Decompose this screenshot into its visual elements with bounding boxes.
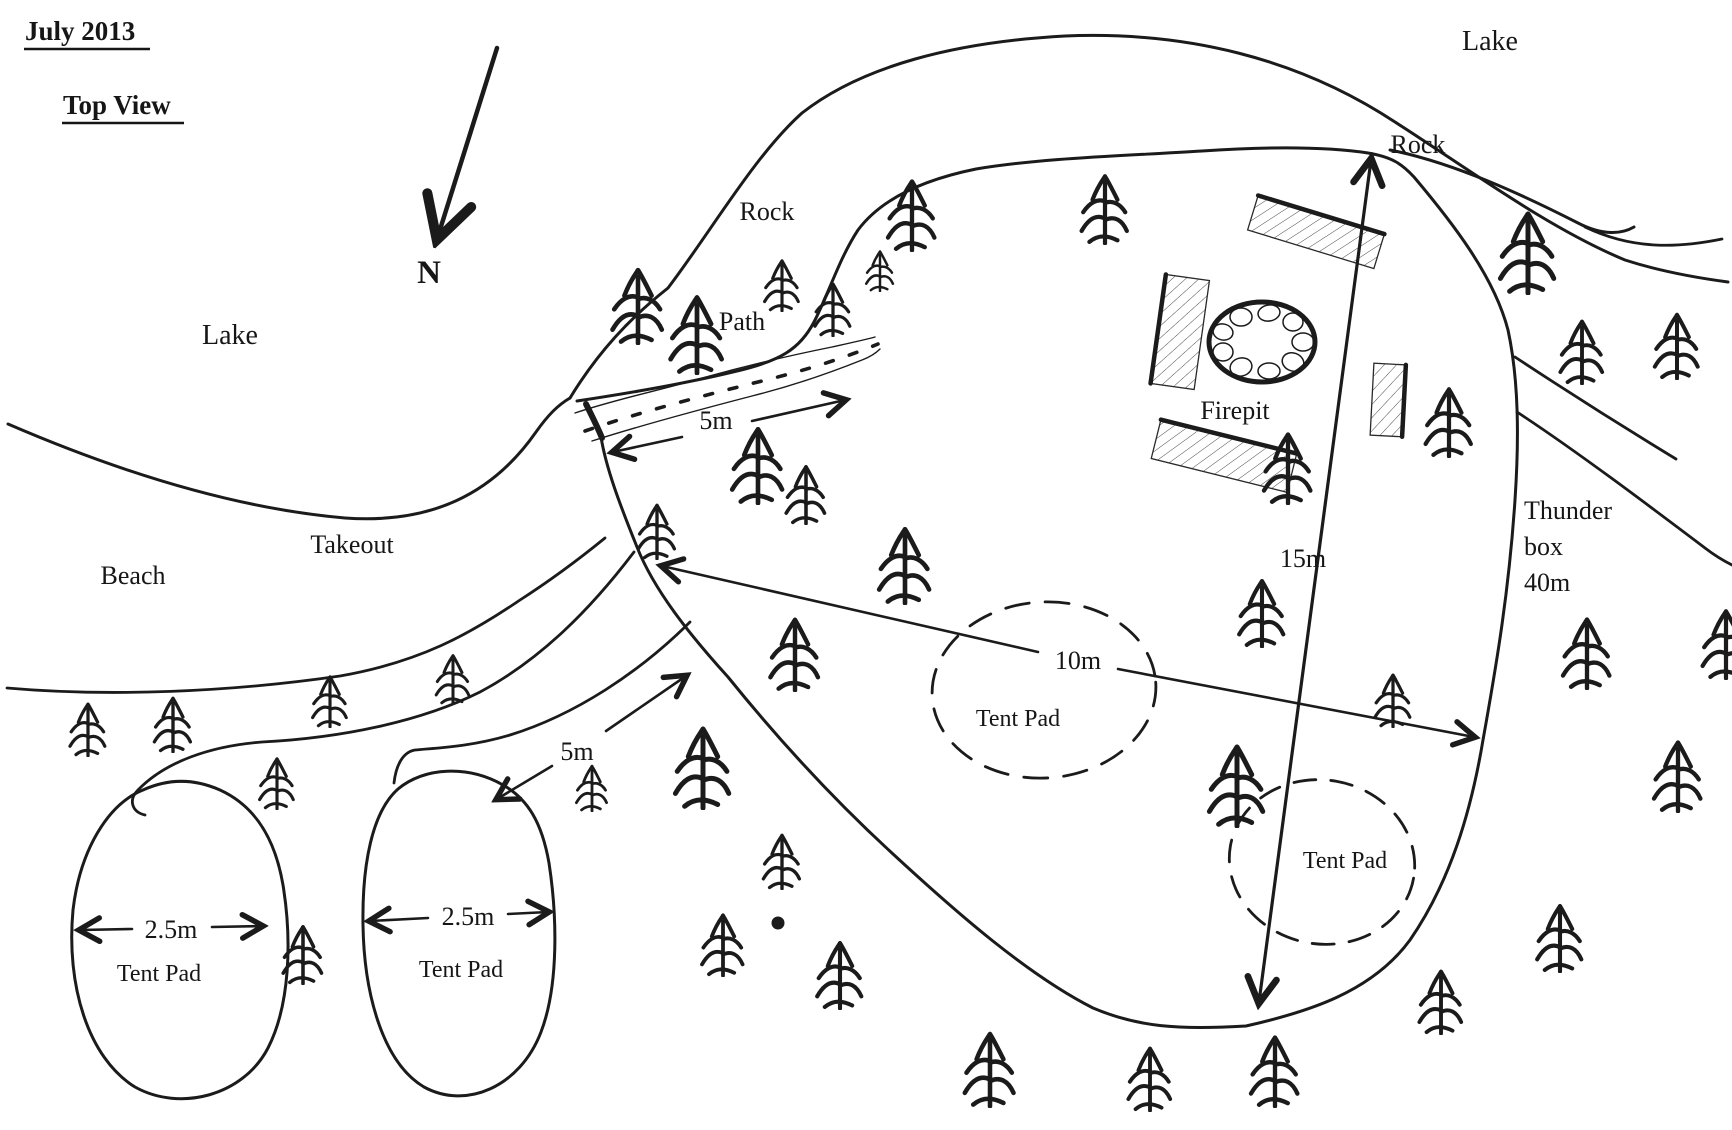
trees-layer: [70, 176, 1732, 1110]
ground-dot: [772, 917, 785, 930]
label-thunderbox-3: 40m: [1524, 568, 1570, 597]
tree-icon: [1560, 322, 1602, 384]
label-firepit: Firepit: [1200, 396, 1270, 425]
map-date-title: July 2013: [25, 16, 135, 46]
tree-icon: [1209, 747, 1262, 826]
lake-shoreline-west: [8, 398, 570, 519]
label-lake-northeast: Lake: [1462, 26, 1518, 57]
tree-icon: [1703, 611, 1732, 678]
tree-icon: [765, 261, 799, 311]
label-tent-pad-4: Tent Pad: [419, 957, 503, 983]
label-thunderbox-1: Thunder: [1524, 496, 1612, 525]
campsite-boundary: [577, 148, 1517, 1028]
tree-icon: [888, 182, 934, 251]
tree-icon: [1654, 743, 1700, 812]
tree-icon: [70, 704, 105, 756]
measure-campsite-length-arrow: [1259, 160, 1371, 1002]
label-path-width: 5m: [699, 406, 732, 435]
view-title: Top View: [63, 90, 171, 120]
north-label: N: [417, 255, 441, 291]
tent-pad-4-outline: [363, 771, 555, 1096]
tree-icon: [866, 252, 893, 292]
tree-icon: [1251, 1038, 1297, 1107]
tree-icon: [1239, 581, 1283, 646]
tree-icon: [732, 429, 782, 503]
tree-icon: [1082, 176, 1127, 243]
tree-icon: [1563, 620, 1609, 689]
tree-icon: [436, 656, 468, 704]
tree-icon: [576, 766, 606, 811]
label-thunderbox-2: box: [1524, 532, 1563, 561]
label-pad3-width: 2.5m: [145, 915, 198, 944]
label-pad4-width: 2.5m: [442, 902, 495, 931]
tree-icon: [260, 759, 294, 809]
label-campsite-length: 15m: [1280, 544, 1326, 573]
tree-icon: [770, 620, 818, 691]
tree-icon: [313, 677, 347, 727]
tree-icon: [702, 915, 743, 975]
tree-icon: [1128, 1049, 1170, 1111]
tree-icon: [1537, 906, 1581, 971]
label-path: Path: [719, 307, 765, 336]
tree-icon: [675, 729, 728, 808]
label-rock-inner: Rock: [740, 197, 795, 226]
tree-icon: [965, 1034, 1014, 1106]
tent-pad-1-outline: [926, 594, 1162, 785]
label-tent-pad-2: Tent Pad: [1303, 848, 1387, 874]
tree-icon: [638, 505, 674, 558]
label-tent-pad-3: Tent Pad: [117, 961, 201, 987]
south-trail-edge-1: [132, 552, 634, 815]
tree-icon: [763, 835, 799, 888]
sketch-map-page: July 2013 Top View N Lake Lake Beach Tak…: [0, 0, 1732, 1130]
label-takeout: Takeout: [310, 530, 394, 559]
tree-icon: [1500, 214, 1553, 293]
north-arrow: [438, 48, 497, 236]
tree-icon: [817, 943, 861, 1008]
label-tent-pad-1: Tent Pad: [976, 706, 1060, 732]
firepit-drawing: [1209, 302, 1315, 382]
tree-icon: [1426, 389, 1471, 456]
rock-shoreline-2: [1585, 227, 1722, 245]
log-bench-west: [1151, 274, 1210, 389]
tree-icon: [671, 298, 722, 374]
label-beach: Beach: [101, 561, 166, 590]
log-bench-east: [1370, 363, 1406, 437]
tree-icon: [786, 467, 824, 524]
tree-icon: [154, 698, 190, 751]
label-lake-west: Lake: [202, 320, 258, 351]
map-canvas: July 2013 Top View N Lake Lake Beach Tak…: [0, 0, 1732, 1130]
tree-icon: [879, 529, 929, 603]
tree-icon: [1655, 315, 1698, 379]
label-rock-point: Rock: [1391, 130, 1446, 159]
label-campsite-width: 10m: [1055, 646, 1101, 675]
label-trail-width: 5m: [560, 737, 593, 766]
tree-icon: [1419, 972, 1461, 1034]
thunderbox-trail-1: [1515, 357, 1676, 459]
